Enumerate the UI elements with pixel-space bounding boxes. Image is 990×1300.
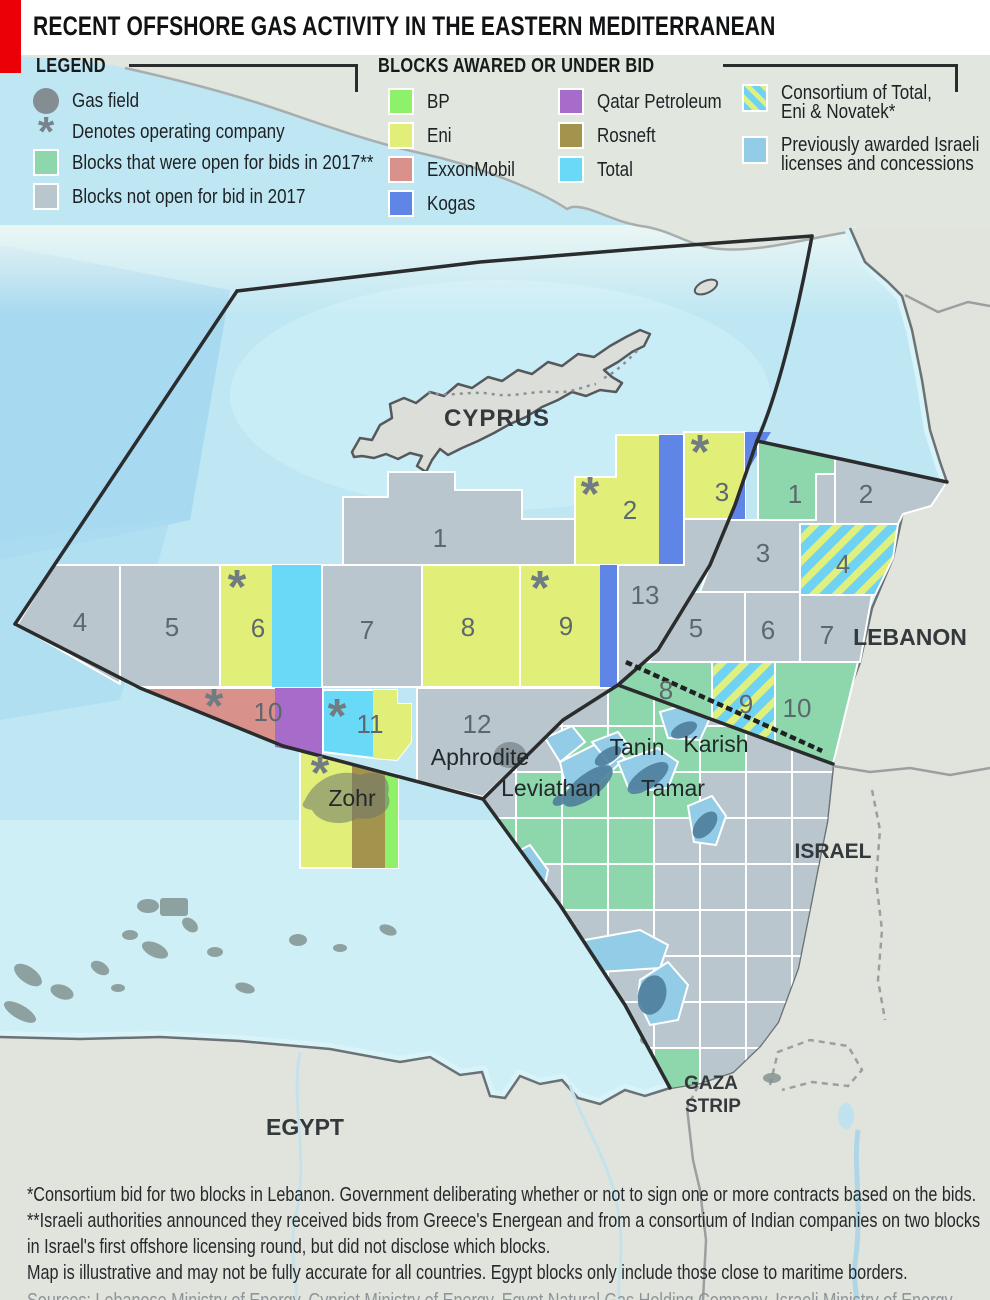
num-cyprus-13: 13 bbox=[631, 580, 660, 610]
companies-title: BLOCKS AWARED OR UNDER BID bbox=[378, 55, 654, 78]
num-lebanon-3: 3 bbox=[756, 538, 770, 568]
num-cyprus-7: 7 bbox=[360, 615, 374, 645]
footnote-consortium: *Consortium bid for two blocks in Lebano… bbox=[27, 1182, 990, 1208]
label-lebanon: LEBANON bbox=[853, 624, 967, 650]
rosneft-swatch bbox=[558, 122, 584, 149]
rosneft-label: Rosneft bbox=[597, 126, 656, 146]
eni-swatch bbox=[388, 122, 414, 149]
legend-panel: LEGEND Gas field * Denotes operating com… bbox=[36, 55, 358, 220]
asterisk-zohr: * bbox=[311, 747, 330, 800]
label-karish: Karish bbox=[683, 731, 748, 757]
label-cyprus: CYPRUS bbox=[444, 405, 550, 432]
legend-rule bbox=[129, 64, 358, 67]
asterisk-block-3: * bbox=[691, 426, 710, 479]
bp-swatch bbox=[388, 88, 414, 115]
num-lebanon-5: 5 bbox=[689, 613, 703, 643]
label-israel: ISRAEL bbox=[794, 840, 871, 863]
label-aphrodite: Aphrodite bbox=[431, 744, 529, 770]
num-lebanon-9: 9 bbox=[739, 689, 753, 719]
block-cyprus-2-kogas-stripe bbox=[659, 435, 684, 565]
num-lebanon-7: 7 bbox=[820, 620, 834, 650]
lake bbox=[838, 1103, 854, 1129]
qatar-swatch bbox=[558, 88, 584, 115]
num-cyprus-3: 3 bbox=[715, 477, 729, 507]
num-lebanon-4: 4 bbox=[836, 549, 850, 579]
consortium-swatch bbox=[742, 84, 768, 112]
num-cyprus-2: 2 bbox=[623, 495, 637, 525]
open-blocks-swatch bbox=[33, 149, 59, 176]
num-cyprus-5: 5 bbox=[165, 612, 179, 642]
exxonmobil-swatch bbox=[388, 156, 414, 183]
eni-label: Eni bbox=[427, 126, 452, 146]
kogas-label: Kogas bbox=[427, 194, 475, 214]
israeli-licenses-label: Previously awarded Israeli licenses and … bbox=[781, 136, 979, 174]
num-lebanon-6: 6 bbox=[761, 615, 775, 645]
num-cyprus-10: 10 bbox=[254, 697, 283, 727]
sources-line: Sources: Lebanese Ministry of Energy, Cy… bbox=[27, 1288, 990, 1300]
infographic: CYPRUS LEBANON ISRAEL EGYPT GAZA STRIP A… bbox=[0, 0, 990, 1300]
num-lebanon-10: 10 bbox=[783, 693, 812, 723]
israeli-licenses-swatch bbox=[742, 136, 768, 164]
asterisk-block-2: * bbox=[581, 468, 600, 521]
asterisk-block-11: * bbox=[328, 690, 347, 743]
closed-blocks-swatch bbox=[33, 183, 59, 210]
label-leviathan: Leviathan bbox=[501, 775, 601, 801]
operator-asterisk-icon: * bbox=[33, 119, 59, 145]
open-blocks-label: Blocks that were open for bids in 2017** bbox=[72, 153, 373, 173]
bp-label: BP bbox=[427, 92, 450, 112]
label-tanin: Tanin bbox=[610, 734, 665, 760]
num-cyprus-6: 6 bbox=[251, 613, 265, 643]
num-lebanon-2: 2 bbox=[859, 479, 873, 509]
page-title: RECENT OFFSHORE GAS ACTIVITY IN THE EAST… bbox=[33, 11, 776, 42]
num-lebanon-1: 1 bbox=[788, 479, 802, 509]
brand-red-bar bbox=[0, 0, 21, 73]
asterisk-block-9: * bbox=[531, 562, 550, 615]
num-cyprus-8: 8 bbox=[461, 612, 475, 642]
total-swatch bbox=[558, 156, 584, 183]
companies-panel: BLOCKS AWARED OR UNDER BID BP Eni ExxonM… bbox=[378, 55, 958, 225]
exxonmobil-label: ExxonMobil bbox=[427, 160, 515, 180]
num-cyprus-1: 1 bbox=[433, 523, 447, 553]
closed-blocks-label: Blocks not open for bid in 2017 bbox=[72, 187, 305, 207]
label-egypt: EGYPT bbox=[266, 1114, 344, 1140]
total-label: Total bbox=[597, 160, 633, 180]
gas-field-label: Gas field bbox=[72, 91, 139, 111]
label-zohr: Zohr bbox=[328, 785, 376, 811]
num-lebanon-8: 8 bbox=[659, 675, 673, 705]
label-gaza-2: STRIP bbox=[685, 1096, 741, 1117]
num-cyprus-12: 12 bbox=[463, 709, 492, 739]
footnotes: *Consortium bid for two blocks in Lebano… bbox=[27, 1182, 990, 1300]
label-gaza-1: GAZA bbox=[684, 1073, 738, 1094]
footnote-israeli-bids: **Israeli authorities announced they rec… bbox=[27, 1208, 990, 1260]
block-cyprus-6-total-stripe bbox=[272, 565, 322, 687]
footnote-disclaimer: Map is illustrative and may not be fully… bbox=[27, 1260, 990, 1286]
qatar-label: Qatar Petroleum bbox=[597, 92, 722, 112]
num-cyprus-9: 9 bbox=[559, 611, 573, 641]
kogas-swatch bbox=[388, 190, 414, 217]
num-cyprus-11: 11 bbox=[357, 709, 384, 739]
num-cyprus-4: 4 bbox=[73, 607, 87, 637]
asterisk-block-10: * bbox=[205, 680, 224, 733]
operator-label: Denotes operating company bbox=[72, 122, 285, 142]
consortium-label: Consortium of Total, Eni & Novatek* bbox=[781, 84, 932, 122]
label-tamar: Tamar bbox=[641, 775, 705, 801]
block-cyprus-9-kogas-stripe bbox=[600, 565, 618, 687]
legend-title: LEGEND bbox=[36, 55, 106, 78]
companies-rule bbox=[723, 64, 958, 67]
asterisk-block-6: * bbox=[228, 561, 247, 614]
